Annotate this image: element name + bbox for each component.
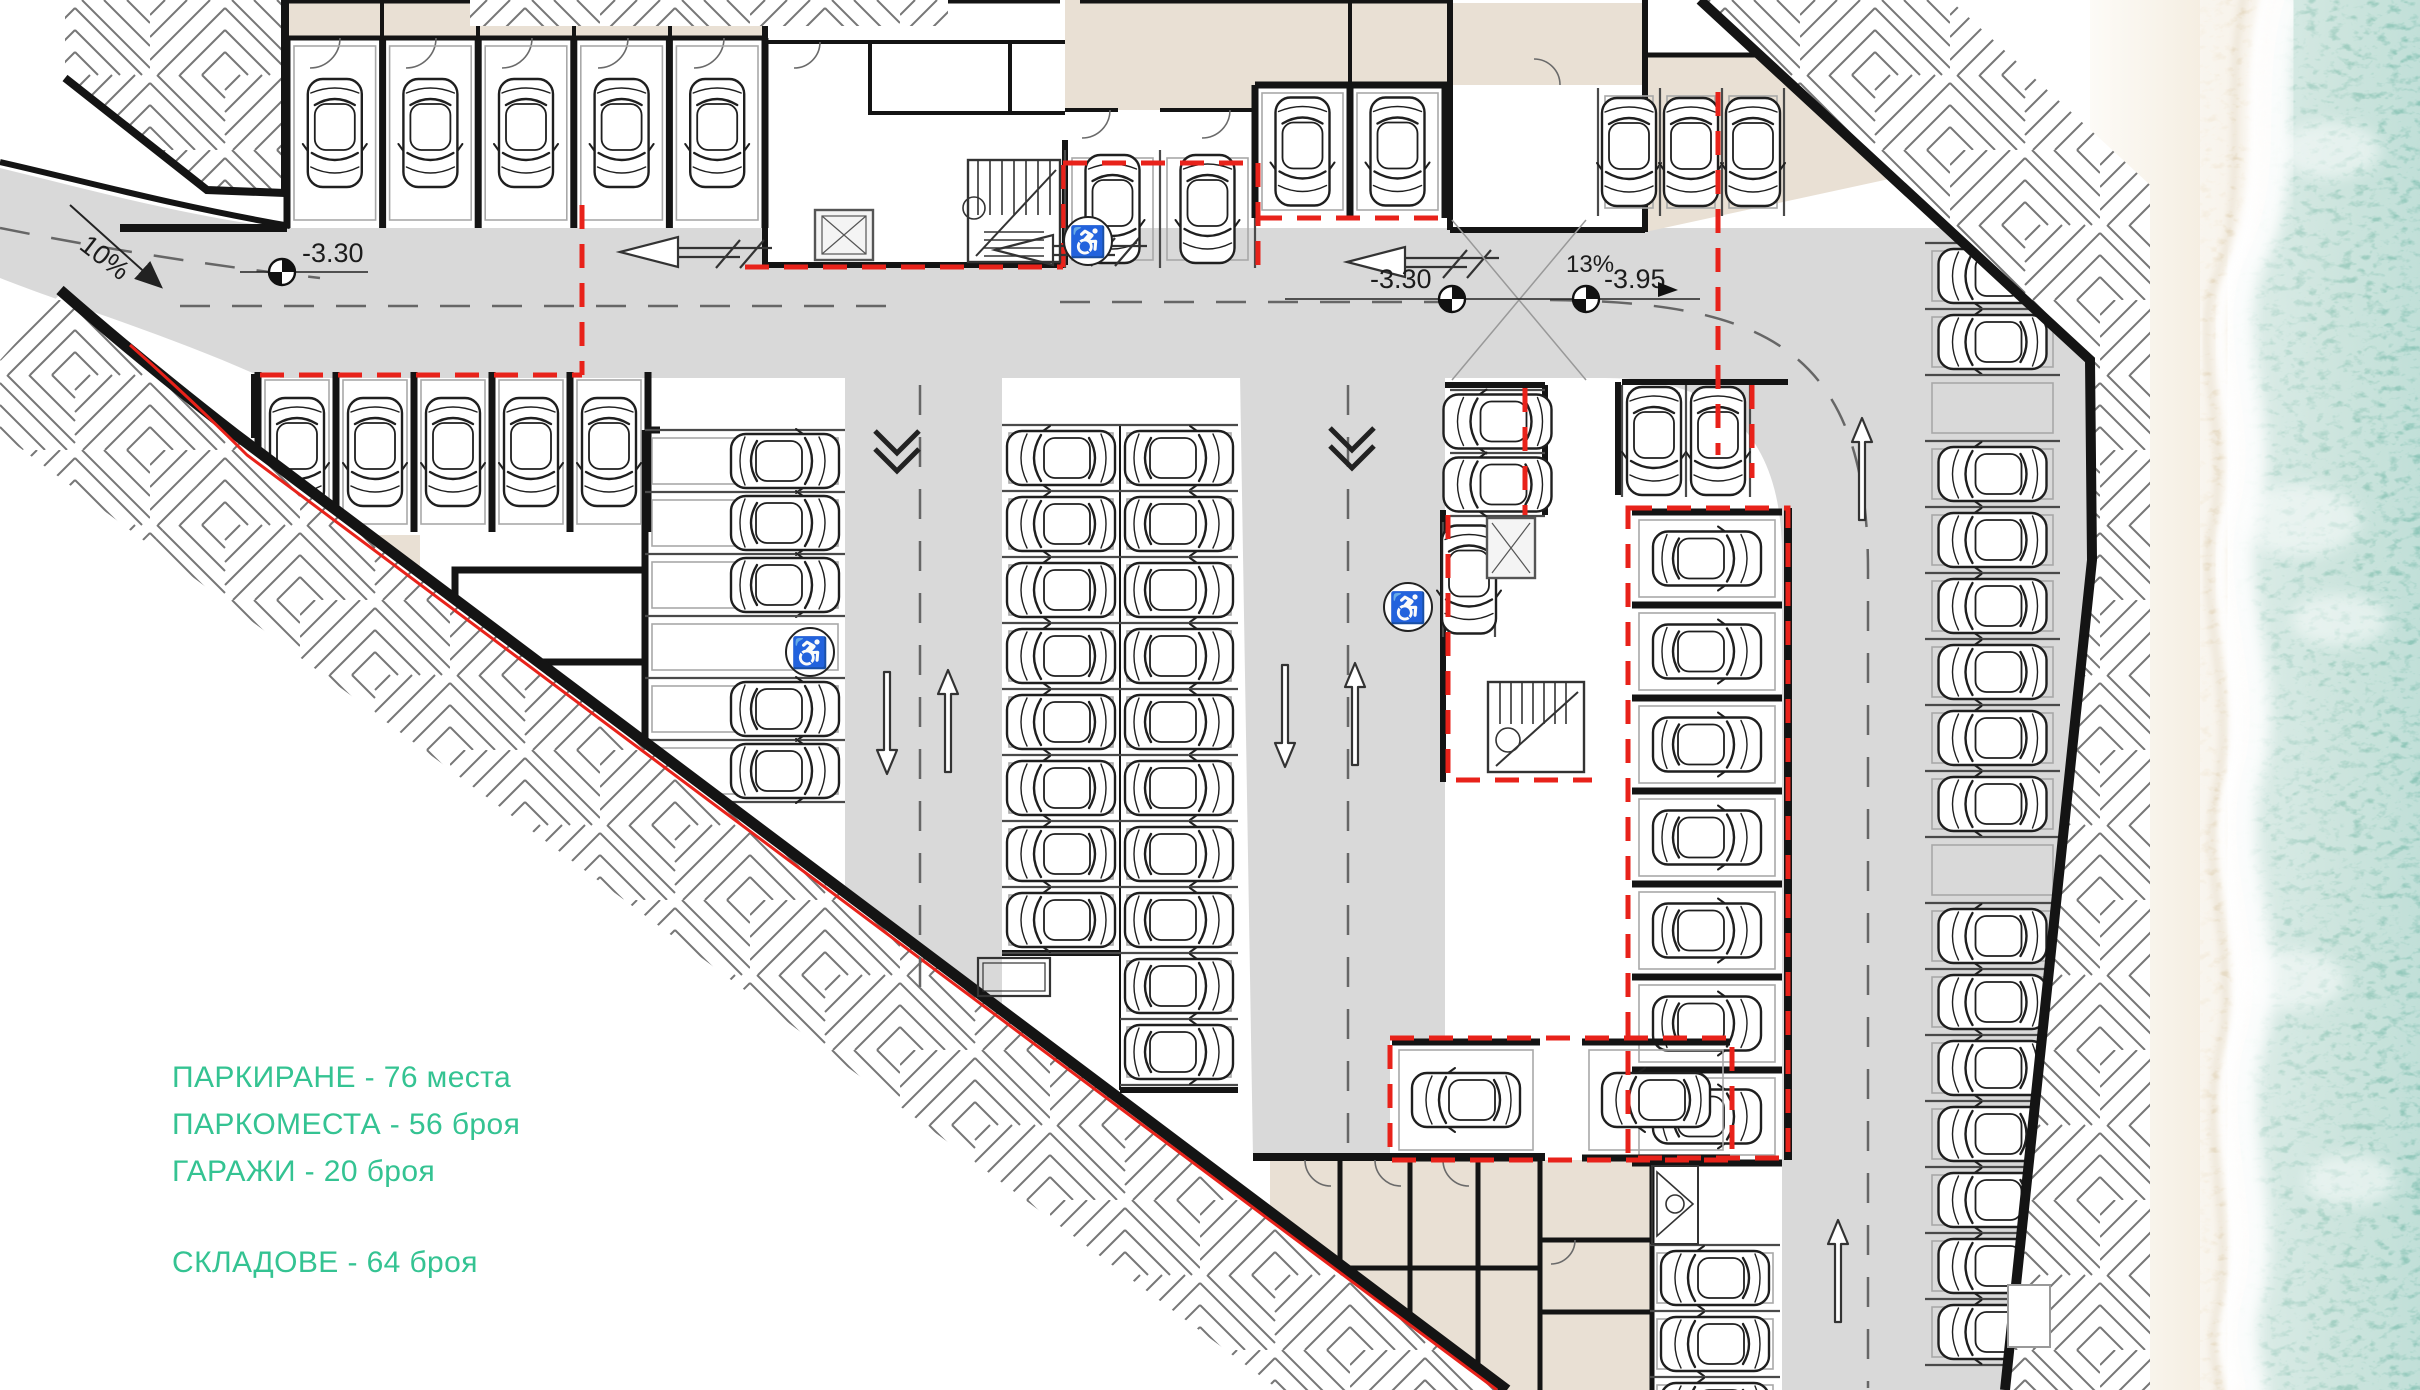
level-marker-mid — [1439, 286, 1465, 312]
elevator-b — [1487, 518, 1535, 578]
car — [398, 79, 462, 187]
floor-plan-sheet: 10% -3.30 -3.30 13% -3.95 — [0, 0, 2420, 1390]
car — [494, 79, 558, 187]
car — [1125, 756, 1233, 820]
technical-rooms — [765, 0, 1065, 265]
car — [1721, 98, 1785, 206]
car — [1125, 690, 1233, 754]
car — [1653, 899, 1761, 963]
car — [1125, 822, 1233, 886]
car — [1412, 1068, 1520, 1132]
car — [685, 79, 749, 187]
level-left-label: -3.30 — [302, 238, 364, 268]
car — [577, 398, 641, 506]
parking-row-garages-top-left — [287, 38, 765, 228]
staircase-b — [1488, 682, 1584, 772]
car — [303, 79, 367, 187]
car — [499, 398, 563, 506]
level-right-label: -3.95 — [1604, 264, 1666, 294]
level-marker-right — [1573, 286, 1599, 312]
car — [1125, 426, 1233, 490]
car — [1939, 574, 2047, 638]
parking-row-garage-column-right — [1632, 512, 1782, 1163]
car — [1444, 453, 1552, 517]
car — [1661, 1312, 1769, 1376]
car — [1939, 508, 2047, 572]
car — [421, 398, 485, 506]
car — [1939, 310, 2047, 374]
hatch-top-strip — [470, 0, 948, 26]
parking-row-mid-right-pair — [1444, 390, 1552, 517]
car — [1007, 492, 1115, 556]
parking-row-top-right-stalls — [1597, 88, 1785, 216]
level-mid-label: -3.30 — [1370, 264, 1432, 294]
car — [1366, 98, 1430, 206]
water-texture — [2200, 0, 2420, 1390]
storage-top-right — [1452, 3, 1643, 85]
parking-row-mid-right-top-pair — [1622, 385, 1750, 497]
storage-bottom-right — [1540, 1160, 1652, 1390]
car — [1622, 387, 1686, 495]
wheelchair-icon: ♿ — [791, 635, 828, 670]
car — [1007, 888, 1115, 952]
car — [1007, 624, 1115, 688]
car — [1444, 390, 1552, 454]
car — [343, 398, 407, 506]
parking-row-left-center-column — [645, 429, 845, 803]
level-marker-left — [269, 259, 295, 285]
storage-top-center — [1065, 0, 1255, 110]
parking-row-bottom-garage-a — [1392, 1042, 1540, 1158]
wheelchair-icon: ♿ — [1069, 224, 1106, 259]
legend-line-garages: ГАРАЖИ - 20 броя — [172, 1148, 520, 1195]
car — [731, 491, 839, 555]
car — [1939, 706, 2047, 770]
car — [1661, 1378, 1769, 1390]
storage-top-center2 — [1255, 0, 1450, 85]
legend: ПАРКИРАНЕ - 76 места ПАРКОМЕСТА - 56 бро… — [172, 1054, 520, 1286]
parking-row-central-left — [1002, 425, 1120, 953]
car — [731, 553, 839, 617]
car — [731, 739, 839, 803]
car — [1597, 98, 1661, 206]
hatch-top-left — [65, 0, 285, 195]
car — [1939, 970, 2047, 1034]
car — [1653, 992, 1761, 1056]
car — [1125, 1020, 1233, 1084]
car — [1653, 806, 1761, 870]
car — [1125, 492, 1233, 556]
car — [1939, 904, 2047, 968]
car — [1661, 1246, 1769, 1310]
car — [1653, 527, 1761, 591]
parking-row-bottom-column — [1650, 1245, 1780, 1390]
car — [1271, 98, 1335, 206]
parking-row-top-center-garages — [1255, 85, 1445, 218]
elevator-a — [815, 210, 873, 260]
car — [1007, 822, 1115, 886]
car — [1125, 888, 1233, 952]
car — [1686, 387, 1750, 495]
beach-equipment — [2008, 1285, 2050, 1347]
car — [1125, 624, 1233, 688]
car — [1653, 713, 1761, 777]
car — [1939, 1036, 2047, 1100]
legend-line-storage: СКЛАДОВЕ - 64 броя — [172, 1239, 520, 1286]
car — [1659, 98, 1723, 206]
car — [590, 79, 654, 187]
parking-row-central-right — [1120, 425, 1238, 1085]
car — [1007, 756, 1115, 820]
car — [1125, 954, 1233, 1018]
car — [731, 429, 839, 493]
car — [1939, 640, 2047, 704]
car — [731, 677, 839, 741]
car — [1939, 442, 2047, 506]
legend-line-spots: ПАРКОМЕСТА - 56 броя — [172, 1101, 520, 1148]
legend-line-parking: ПАРКИРАНЕ - 76 места — [172, 1054, 520, 1101]
car — [1176, 155, 1240, 263]
car — [1007, 426, 1115, 490]
car — [1125, 558, 1233, 622]
car — [1939, 772, 2047, 836]
wheelchair-icon: ♿ — [1389, 590, 1426, 625]
car — [1007, 558, 1115, 622]
car — [1602, 1068, 1710, 1132]
vent-shaft — [1652, 1166, 1698, 1244]
car — [1653, 620, 1761, 684]
car — [1007, 690, 1115, 754]
